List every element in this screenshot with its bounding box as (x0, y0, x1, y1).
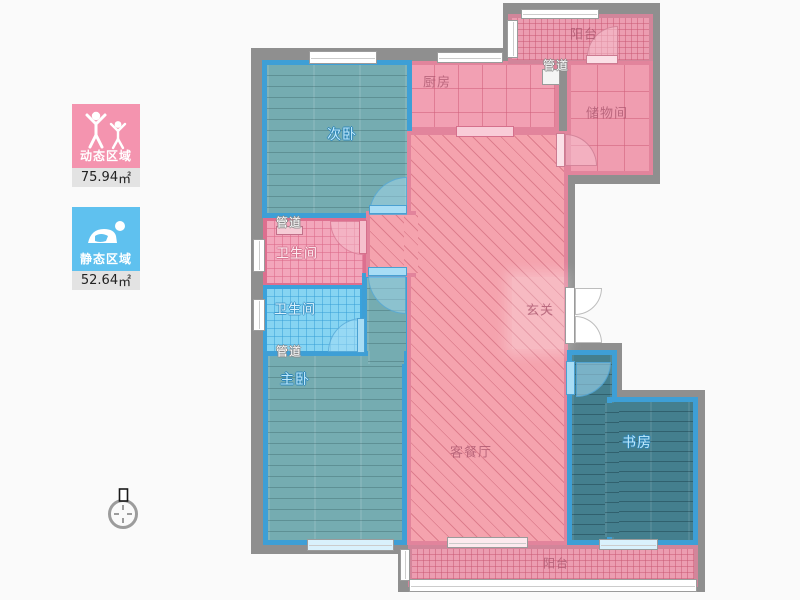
room-living-merge-patch (404, 215, 418, 273)
door-storage (556, 133, 565, 167)
door-bathroom-blue (357, 318, 365, 353)
door-bathroom-pink (359, 220, 367, 254)
door-study (566, 361, 575, 395)
door-master-bedroom (368, 267, 407, 276)
window-balcony-top-left (507, 20, 518, 58)
window-balcony-bottom-rail (409, 579, 697, 592)
window-balcony-bottom-left (400, 549, 410, 581)
door-second-bedroom (369, 205, 407, 214)
entry-door-arc-upper (575, 288, 602, 315)
window-master-bottom (307, 539, 394, 551)
label-bathroom-pink: 卫生间 (276, 243, 318, 262)
window-study-bottom (599, 539, 658, 550)
room-study-merge-patch (605, 403, 619, 537)
label-living-dining: 客餐厅 (450, 442, 492, 461)
label-entrance-hall: 玄关 (526, 300, 554, 319)
floorplan-app: 动态区域 75.94㎡ 静态区域 52.64㎡ (0, 0, 800, 600)
label-study: 书房 (622, 432, 652, 452)
label-master-bedroom: 主卧 (280, 369, 310, 389)
label-kitchen: 厨房 (423, 72, 451, 91)
room-master-merge-patch (368, 351, 404, 364)
window-bathroom-blue-left (253, 299, 265, 331)
kitchen-pass-opening (456, 126, 514, 137)
label-pipe-lefttop: 管道 (276, 214, 302, 231)
label-pipe-topright: 管道 (543, 57, 569, 74)
label-storage: 储物间 (586, 103, 628, 122)
room-study-right[interactable] (607, 397, 698, 545)
label-pipe-leftbottom: 管道 (276, 343, 302, 360)
label-balcony-bottom: 阳台 (543, 555, 569, 572)
window-kitchen-top (437, 52, 503, 63)
window-bathroom-pink-left (253, 239, 265, 272)
door-balcony-top (586, 55, 618, 64)
entry-door-arc-lower (575, 316, 602, 343)
window-living-bottom (447, 537, 528, 548)
label-bathroom-blue: 卫生间 (274, 299, 316, 318)
entry-door (565, 287, 575, 344)
window-second-bedroom-top (309, 51, 377, 64)
label-second-bedroom: 次卧 (327, 124, 357, 144)
floor-plan: 次卧 厨房 阳台 管道 储物间 管道 卫生间 卫生间 管道 主卧 玄关 客餐厅 … (0, 0, 800, 600)
label-balcony-top: 阳台 (570, 24, 598, 43)
window-balcony-top (521, 9, 599, 19)
